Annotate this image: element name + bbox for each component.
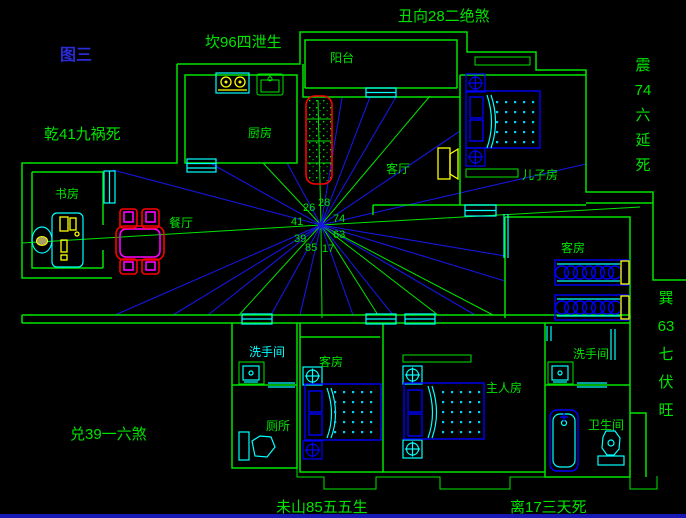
annotation-north: 丑向28二绝煞 <box>398 8 490 25</box>
office-chair <box>32 227 52 253</box>
furniture <box>32 57 629 471</box>
compass-number-26: 26 <box>303 202 315 214</box>
ceiling-fan-icon <box>466 148 485 166</box>
annotation-west: 乾41九祸死 <box>44 126 121 143</box>
floor-plan-drawing: 图三 丑向28二绝煞 坎96四泄生 乾41九祸死 兑39一六煞 未山85五五生 … <box>0 0 686 518</box>
room-label-dining: 餐厅 <box>169 215 193 230</box>
shelf-master-room <box>403 355 471 362</box>
room-label-son-room: 儿子房 <box>522 167 558 182</box>
room-label-kitchen: 厨房 <box>248 125 272 140</box>
shelf-son-room <box>475 57 530 65</box>
annotation-south: 未山85五五生 <box>276 499 368 516</box>
annotation-east-lower: 巽63七伏旺 <box>658 290 675 419</box>
room-label-living: 客厅 <box>386 161 410 176</box>
ceiling-fan-icon <box>403 440 422 458</box>
room-label-balcony: 阳台 <box>330 50 354 65</box>
dining-chairs <box>120 209 159 274</box>
ceiling-fan-icon <box>403 366 422 384</box>
bed-master-room <box>404 383 484 439</box>
compass-number-41: 41 <box>291 216 303 228</box>
kitchen-sink-icon <box>257 74 283 95</box>
washbasin-icon <box>548 362 573 384</box>
compass-number-85: 85 <box>305 242 317 254</box>
annotation-southwest: 兑39一六煞 <box>70 426 147 443</box>
twin-bed-2 <box>555 295 629 320</box>
compass-number-17: 17 <box>322 243 334 255</box>
annotation-southeast: 离17三天死 <box>510 499 587 516</box>
outer-boundary-west <box>22 64 177 278</box>
washbasin-icon <box>239 362 264 384</box>
room-label-washroom-se: 洗手间 <box>573 347 609 361</box>
toilet-icon <box>598 431 624 465</box>
kitchen-window <box>187 159 216 172</box>
annotation-east-upper: 震74六延死 <box>635 57 652 174</box>
south-corridor-wall <box>22 315 630 323</box>
bed-son-room <box>466 91 540 148</box>
compass-number-63: 63 <box>333 229 345 241</box>
balcony-window <box>366 88 396 97</box>
room-label-master: 主人房 <box>486 380 522 395</box>
bed-guest-south <box>305 384 381 440</box>
plant-box <box>306 96 332 184</box>
ceiling-fan-icon <box>303 367 322 385</box>
twin-bed-1 <box>555 260 629 285</box>
balcony-walls <box>305 40 457 88</box>
windows-and-doors <box>104 88 615 387</box>
study-window <box>104 171 115 203</box>
kitchen-walls <box>185 75 297 163</box>
corridor-door <box>547 326 551 341</box>
tv-icon <box>438 148 458 179</box>
wardrobe-son-room <box>466 169 518 177</box>
porch-steps <box>297 468 657 489</box>
room-label-guest-south: 客房 <box>319 354 343 369</box>
dining-table <box>116 226 164 260</box>
annotation-northwest: 坎96四泄生 <box>205 34 282 51</box>
toilet-icon <box>239 432 275 460</box>
room-label-guest-east: 客房 <box>561 240 585 255</box>
son-room-window <box>465 205 496 216</box>
cad-floor-plan-canvas[interactable]: 图三 丑向28二绝煞 坎96四泄生 乾41九祸死 兑39一六煞 未山85五五生 … <box>0 0 686 518</box>
outer-boundary-north <box>177 32 686 280</box>
washroom-se-door <box>611 329 615 360</box>
room-label-washroom-sw: 洗手间 <box>249 345 285 359</box>
window-border-bottom <box>0 514 686 518</box>
room-label-study: 书房 <box>55 186 79 201</box>
bathtub-icon <box>550 410 578 471</box>
compass-number-74: 74 <box>333 213 345 225</box>
ceiling-fan-icon <box>303 441 322 459</box>
room-label-bathroom: 卫生间 <box>588 418 624 432</box>
figure-title: 图三 <box>60 46 92 64</box>
ceiling-fan-icon <box>466 74 485 92</box>
compass-center-point <box>318 222 324 228</box>
stove-icon <box>216 73 249 93</box>
room-label-toilet: 厕所 <box>266 419 290 433</box>
guest-east-door <box>504 214 508 258</box>
compass-number-28: 28 <box>318 197 330 209</box>
